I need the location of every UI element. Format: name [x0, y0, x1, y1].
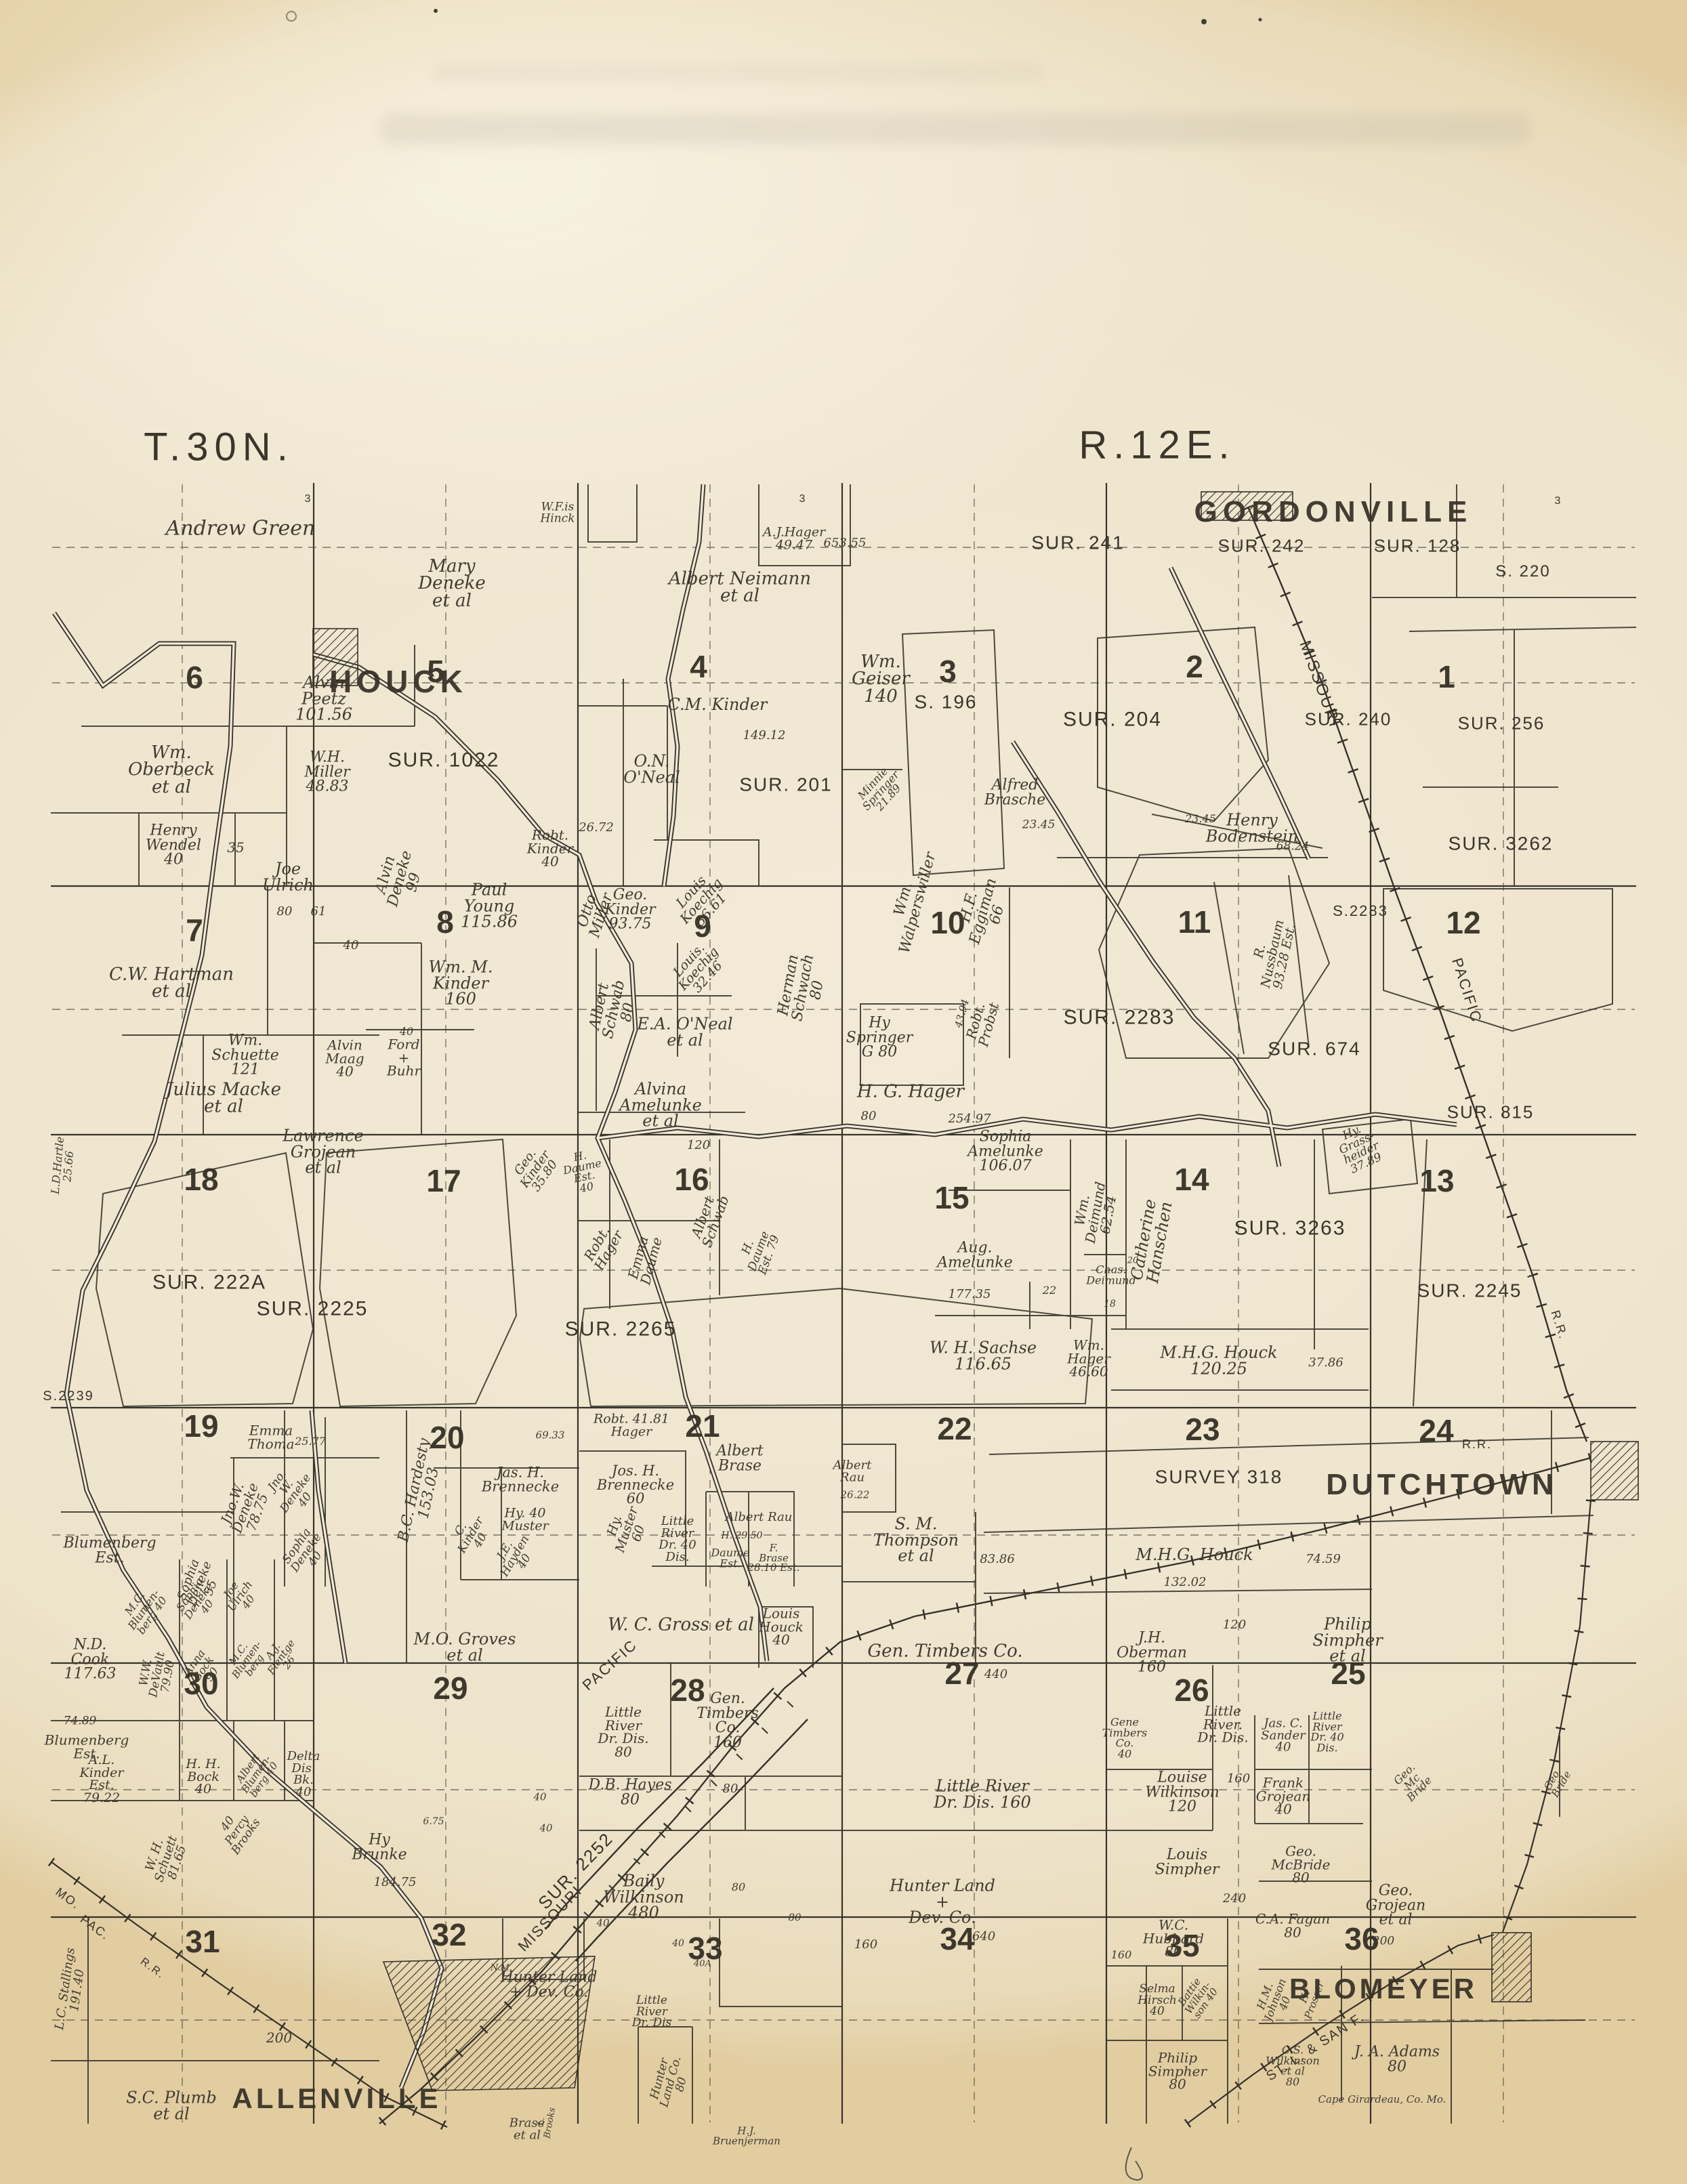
- parcel-label: 184.75: [374, 1876, 417, 1889]
- section-number: 16: [674, 1161, 709, 1198]
- parcel-label: M.H.G. Houck: [1136, 1547, 1253, 1563]
- parcel-label: 20: [1127, 1257, 1139, 1266]
- parcel-label: Albert Rau: [726, 1511, 793, 1524]
- parcel-label: C.S. Wilkinson et al 80: [1266, 2045, 1320, 2088]
- parcel-label: Julius Macke et al: [166, 1082, 281, 1116]
- parcel-label: Wm. Oberbeck et al: [128, 744, 215, 796]
- parcel-label: W.F.is Hinck: [540, 501, 575, 524]
- parcel-label: H.J. Bruenjerman: [713, 2126, 780, 2145]
- parcel-label: 40: [672, 1939, 684, 1949]
- parcel-label: SUR. 256: [1458, 715, 1545, 732]
- place-name: ALLENVILLE: [232, 2082, 442, 2115]
- parcel-label: SUR. 2265: [565, 1319, 677, 1339]
- parcel-label: 160: [1111, 1950, 1132, 1960]
- parcel-label: 640: [972, 1931, 995, 1943]
- parcel-label: Jas. H. Brennecke: [482, 1465, 559, 1493]
- parcel-label: 61: [311, 906, 327, 918]
- section-number: 26: [1174, 1672, 1209, 1708]
- parcel-label: H. 29.50: [721, 1532, 762, 1541]
- parcel-label: 23.45: [1022, 820, 1056, 831]
- section-number: 4: [690, 648, 707, 685]
- parcel-label: 160: [854, 1939, 877, 1951]
- place-name: BLOMEYER: [1289, 1973, 1478, 2005]
- parcel-label: 40: [539, 1824, 552, 1834]
- section-number: 32: [432, 1916, 466, 1953]
- section-number: 15: [934, 1179, 969, 1216]
- parcel-label: 200: [266, 2032, 292, 2045]
- parcel-label: Joe Ulrich: [262, 861, 314, 893]
- parcel-label: 200: [1373, 1936, 1394, 1948]
- parcel-label: Albert Rau: [833, 1459, 872, 1483]
- parcel-label: Wm. M. Kinder 160: [429, 960, 493, 1008]
- parcel-label: 132.02: [1164, 1576, 1207, 1589]
- parcel-label: Andrew Green: [166, 518, 316, 538]
- parcel-label: 120: [1223, 1619, 1246, 1631]
- parcel-label: S.2283: [1333, 904, 1388, 919]
- parcel-label: 80: [861, 1110, 877, 1122]
- parcel-label: Chas. Deimund: [1086, 1264, 1136, 1285]
- parcel-label: S. M. Thompson et al: [873, 1517, 959, 1565]
- section-number: 23: [1185, 1411, 1220, 1448]
- section-number: 14: [1174, 1161, 1209, 1198]
- parcel-label: 80: [723, 1783, 738, 1795]
- parcel-label: Little River Dr. 40 Dis.: [659, 1515, 696, 1563]
- section-number: 1: [1438, 658, 1455, 695]
- parcel-label: Baily Wilkinson 480: [603, 1874, 684, 1922]
- parcel-label: 80: [788, 1913, 801, 1923]
- publisher-credit: Cape Girardeau, Co. Mo.: [1318, 2093, 1446, 2105]
- parcel-label: SUR. 128: [1374, 537, 1461, 554]
- parcel-label: SUR. 674: [1268, 1039, 1360, 1057]
- parcel-label: SUR. 2245: [1417, 1281, 1522, 1299]
- section-number: 7: [186, 912, 203, 948]
- parcel-label: Selma Hirsch 40: [1138, 1983, 1177, 2017]
- parcel-label: W.H. Miller 48.83: [304, 751, 350, 795]
- section-number: 17: [426, 1162, 461, 1199]
- parcel-label: Hy Brunke: [352, 1832, 407, 1862]
- parcel-label: Robt. Kinder 40: [527, 829, 573, 869]
- parcel-label: 149.12: [743, 730, 786, 742]
- parcel-label: Delta Dis. Bk. 40: [287, 1750, 320, 1799]
- parcel-label: Paul Young 115.86: [461, 883, 518, 931]
- parcel-label: W. H. Sachse 116.65: [930, 1340, 1037, 1372]
- section-number: 6: [186, 659, 203, 696]
- parcel-label: 26.22: [841, 1490, 870, 1500]
- parcel-label: SUR. 2225: [257, 1299, 369, 1318]
- parcel-label: 22: [1043, 1285, 1056, 1296]
- parcel-label: Little River Dr. 40 Dis.: [1310, 1711, 1344, 1754]
- parcel-label: R.R.: [1462, 1439, 1492, 1451]
- parcel-label: 26.72: [579, 822, 614, 834]
- parcel-label: J. A. Adams 80: [1354, 2044, 1440, 2074]
- parcel-label: Little River Dr. Dis: [632, 1995, 672, 2029]
- parcel-label: 80: [732, 1882, 745, 1893]
- parcel-label: SUR. 240: [1305, 711, 1392, 728]
- parcel-label: Gene Timbers Co. 40: [1102, 1717, 1148, 1760]
- parcel-label: S. 220: [1495, 564, 1550, 580]
- parcel-label: Frank Grojean 40: [1256, 1777, 1310, 1817]
- parcel-label: 40: [343, 940, 359, 952]
- parcel-label: 40: [400, 1026, 413, 1037]
- parcel-label: Gen. Timbers Co.: [867, 1643, 1022, 1660]
- parcel-label: W. C. Gross et al: [608, 1616, 754, 1633]
- parcel-label: Lawrence Grojean et al: [283, 1129, 364, 1177]
- parcel-label: C.M. Kinder: [667, 697, 767, 713]
- parcel-label: Wm. Schuette 121: [211, 1034, 278, 1078]
- parcel-label: Geo. McBride 80: [1272, 1845, 1331, 1885]
- parcel-label: 37.86: [1308, 1357, 1344, 1369]
- parcel-label: Little River. Dr. Dis.: [1197, 1705, 1248, 1745]
- parcel-label: SUR. 2283: [1064, 1007, 1175, 1027]
- parcel-label: D.B. Hayes 80: [588, 1778, 671, 1807]
- parcel-label: Sophia Amelunke 106.07: [967, 1130, 1043, 1174]
- parcel-label: SUR. 201: [739, 775, 832, 793]
- parcel-label: SUR. 204: [1063, 709, 1162, 729]
- parcel-label: 68.24: [1276, 841, 1310, 853]
- parcel-label: SUR. 3262: [1449, 834, 1554, 852]
- parcel-label: 120: [687, 1139, 710, 1152]
- parcel-label: SUR. 3263: [1234, 1218, 1346, 1238]
- parcel-label: 3: [305, 494, 312, 505]
- parcel-label: 74.89: [64, 1716, 97, 1727]
- section-number: 12: [1446, 904, 1480, 941]
- parcel-label: M.O. Groves et al: [414, 1631, 516, 1663]
- parcel-label: 440: [984, 1668, 1007, 1681]
- section-number: 11: [1178, 904, 1211, 940]
- parcel-label: Wm. Geiser 140: [852, 654, 910, 705]
- parcel-label: Louise Wilkinson 120: [1145, 1771, 1220, 1815]
- parcel-label: Gen. Timbers Co. 160: [696, 1692, 758, 1750]
- plat-map-page: { "page": { "title_left": "T.30N.", "tit…: [0, 0, 1687, 2184]
- parcel-label: Blumenberg Est.: [63, 1536, 156, 1565]
- parcel-label: Alfred Brasche: [984, 778, 1046, 807]
- parcel-label: 40A: [694, 1960, 711, 1969]
- parcel-label: Alvin Maag 40: [325, 1039, 364, 1079]
- parcel-label: 23.45: [1185, 814, 1216, 824]
- parcel-label: SUR. 1022: [388, 750, 500, 770]
- parcel-label: Hunter Land + Dev. Co.: [501, 1970, 598, 1999]
- parcel-label: SUR. 222A: [152, 1272, 266, 1292]
- section-number: 22: [937, 1410, 972, 1447]
- parcel-label: SURVEY 318: [1155, 1467, 1283, 1486]
- parcel-label: Albert Brase: [716, 1444, 763, 1473]
- parcel-label: 653.55: [824, 537, 867, 549]
- parcel-label: Geo. Kinder 93.75: [604, 888, 655, 932]
- parcel-label: H. H. Bock 40: [186, 1758, 220, 1796]
- parcel-label: Daume Est.: [711, 1547, 749, 1568]
- parcel-label: 6.75: [423, 1818, 444, 1827]
- parcel-label: M.H.G. Houck 120.25: [1160, 1345, 1277, 1377]
- parcel-label: 3: [1555, 496, 1562, 507]
- parcel-label: F. Brase 28.10 Est.: [747, 1543, 799, 1573]
- parcel-label: H. G. Hager: [857, 1083, 964, 1100]
- section-number: 31: [185, 1923, 220, 1960]
- parcel-label: Henry Wendel 40: [146, 824, 201, 868]
- parcel-label: 74.59: [1306, 1553, 1341, 1566]
- parcel-label: C.A. Fagan 80: [1255, 1912, 1330, 1939]
- parcel-label: A.J.Hager 49.47: [763, 526, 825, 551]
- parcel-label: 160: [1227, 1773, 1250, 1785]
- section-number: 8: [436, 904, 454, 940]
- parcel-label: 25.77: [295, 1436, 326, 1447]
- parcel-label: W.C. Hubbard 80: [1143, 1919, 1204, 1959]
- parcel-label: Robt. 41.81 Hager: [593, 1412, 669, 1437]
- parcel-label: Wm. Hager 46.60: [1067, 1339, 1110, 1379]
- place-name: DUTCHTOWN: [1326, 1468, 1558, 1502]
- section-number: 3: [939, 653, 957, 690]
- parcel-label: S.2239: [43, 1390, 93, 1404]
- parcel-label: Jos. H. Brennecke 60: [597, 1464, 674, 1506]
- parcel-label: 177.35: [949, 1288, 991, 1301]
- parcel-label: Louis Houck 40: [759, 1608, 804, 1647]
- parcel-label: E.A. O'Neal et al: [637, 1016, 732, 1048]
- parcel-label: O.N. O'Neal: [623, 753, 680, 785]
- map-canvas: T.30N. R.12E. Cape Girardeau, Co. Mo. 65…: [0, 0, 1687, 2184]
- parcel-label: 80: [277, 906, 293, 918]
- parcel-label: C.W. Hartman et al: [109, 967, 234, 1001]
- parcel-label: SUR. 815: [1447, 1104, 1535, 1120]
- parcel-label: S. 196: [915, 692, 978, 711]
- range-title: R.12E.: [1079, 423, 1235, 468]
- parcel-label: 3: [799, 494, 807, 505]
- parcel-label: SUR. 242: [1218, 537, 1306, 554]
- parcel-label: Aug. Amelunke: [937, 1240, 1013, 1269]
- parcel-label: Alvina Amelunke et al: [619, 1082, 702, 1130]
- section-number: 18: [184, 1161, 218, 1198]
- parcel-label: Jas. C. Sander 40: [1261, 1718, 1305, 1754]
- section-number: 21: [685, 1408, 720, 1444]
- place-name: GORDONVILLE: [1194, 495, 1473, 529]
- section-number: 13: [1419, 1162, 1454, 1199]
- parcel-label: Hy Springer G 80: [846, 1016, 913, 1060]
- parcel-label: N.D. Cook 117.63: [64, 1638, 117, 1682]
- section-number: 19: [184, 1408, 218, 1444]
- section-number: 2: [1186, 648, 1203, 685]
- parcel-label: SUR. 241: [1031, 533, 1124, 551]
- parcel-label: J.H. Oberman 160: [1117, 1631, 1187, 1675]
- parcel-label: A.L. Kinder Est. 79.22: [80, 1754, 124, 1804]
- parcel-label: Philip Simpher 80: [1148, 2052, 1207, 2092]
- parcel-label: W.W. DeVault 79.90: [137, 1649, 178, 1700]
- parcel-label: Hy. 40 Muster: [501, 1507, 548, 1532]
- parcel-label: 35: [227, 841, 244, 855]
- parcel-label: Louis Simpher: [1155, 1847, 1220, 1876]
- parcel-label: Hunter Land + Dev. Co.: [890, 1878, 995, 1927]
- place-name: HOUCK: [329, 663, 467, 700]
- parcel-label: Geo. Grojean et al: [1366, 1884, 1425, 1928]
- parcel-label: Ford + Buhr: [387, 1038, 421, 1078]
- parcel-label: Little River Dr. Dis. 160: [934, 1778, 1031, 1810]
- township-title: T.30N.: [144, 425, 294, 470]
- parcel-label: 83.86: [980, 1553, 1015, 1566]
- section-number: 24: [1419, 1412, 1453, 1449]
- parcel-label: 40: [533, 1792, 546, 1803]
- parcel-label: Emma Thoma: [247, 1424, 294, 1450]
- parcel-label: Albert Neimann et al: [669, 571, 811, 606]
- parcel-label: Little River Dr. Dis. 80: [598, 1706, 648, 1759]
- parcel-label: Mary Deneke et al: [418, 558, 486, 610]
- parcel-label: Philip Simpher et al: [1312, 1617, 1382, 1665]
- parcel-label: 254.97: [949, 1113, 991, 1125]
- parcel-label: 18: [1104, 1300, 1116, 1309]
- parcel-label: 69.33: [536, 1431, 565, 1441]
- section-number: 29: [433, 1670, 467, 1706]
- parcel-label: 240: [1223, 1893, 1246, 1905]
- parcel-label: S.C. Plumb et al: [126, 2090, 216, 2122]
